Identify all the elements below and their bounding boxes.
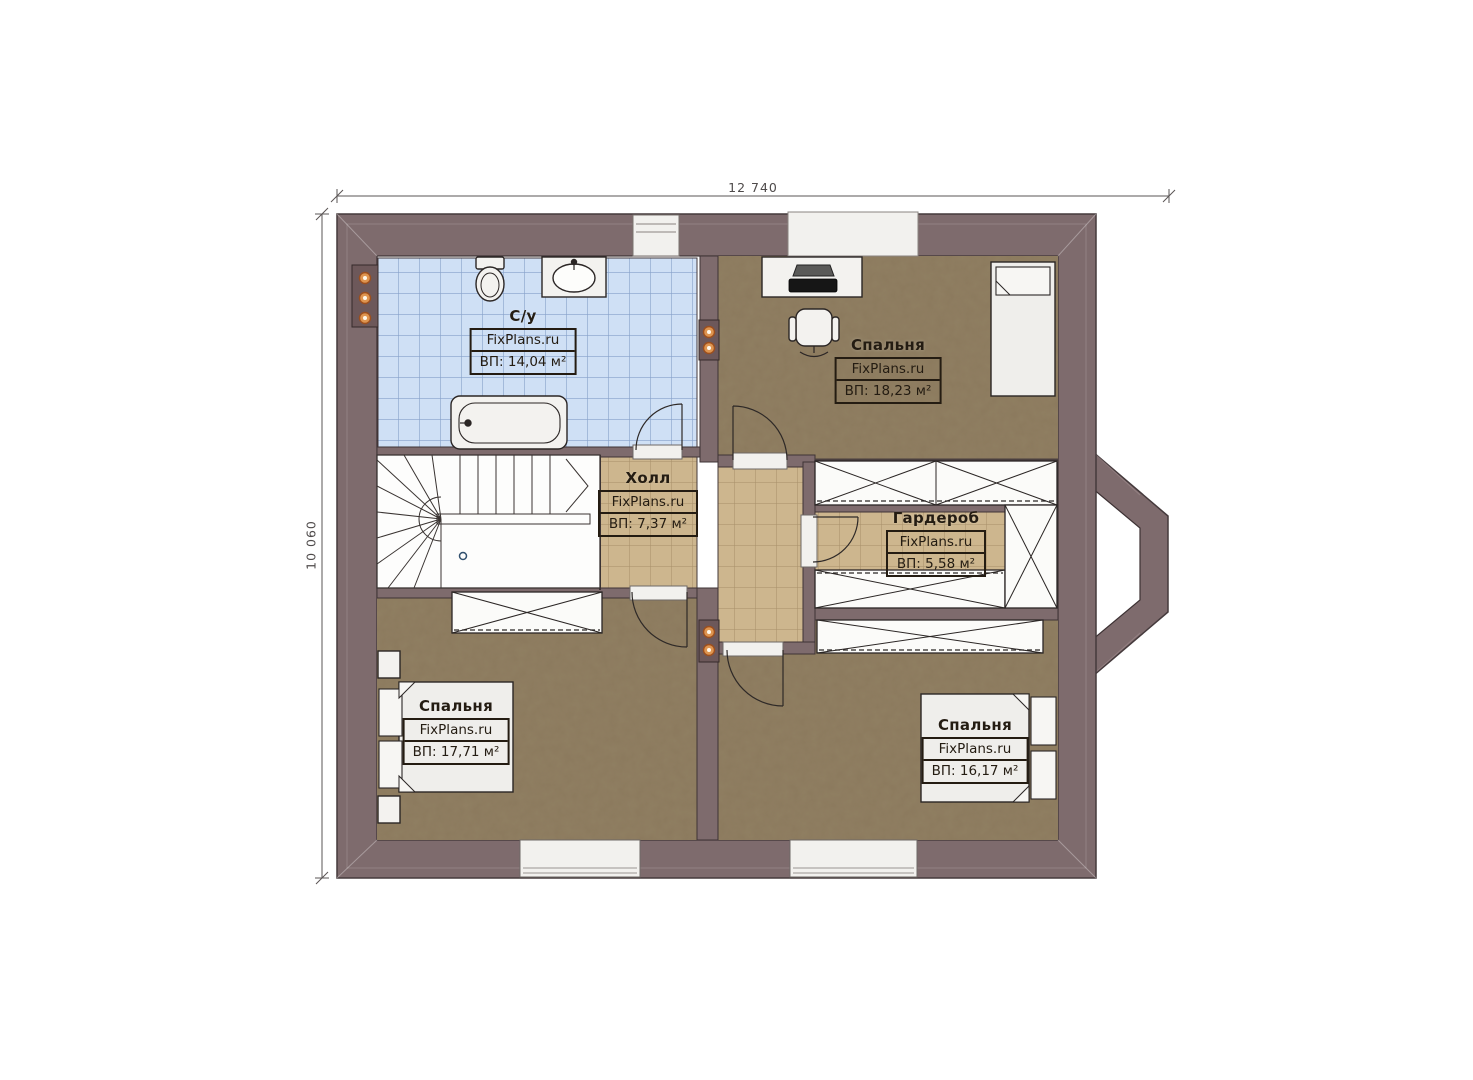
room-title: Холл	[625, 469, 670, 487]
room-info-box: FixPlans.ru ВП: 16,17 м²	[922, 737, 1029, 784]
room-title: Спальня	[851, 336, 925, 354]
light-panel-hall-bottom	[699, 620, 719, 662]
room-title: Спальня	[938, 716, 1012, 734]
room-area: ВП: 5,58 м²	[888, 554, 984, 575]
room-info-box: FixPlans.ru ВП: 18,23 м²	[835, 357, 942, 404]
room-label-bedroom-bottom-left: Спальня FixPlans.ru ВП: 17,71 м²	[403, 697, 510, 765]
storage-unit-top	[815, 461, 1057, 505]
room-area: ВП: 14,04 м²	[472, 352, 575, 373]
sink	[542, 257, 606, 297]
room-label-wardrobe: Гардероб FixPlans.ru ВП: 5,58 м²	[886, 509, 986, 577]
room-area: ВП: 7,37 м²	[600, 514, 696, 535]
room-info-box: FixPlans.ru ВП: 17,71 м²	[403, 718, 510, 765]
room-area: ВП: 17,71 м²	[405, 742, 508, 763]
light-panel-bathroom-left	[352, 265, 378, 327]
storage-unit-tall	[1005, 505, 1057, 608]
floor-plan-svg	[0, 0, 1473, 1080]
room-brand: FixPlans.ru	[888, 532, 984, 554]
floor-plan-canvas: 12 740 10 060 С/у FixPlans.ru ВП: 14,04 …	[0, 0, 1473, 1080]
window-top-small	[633, 215, 679, 256]
floor-corridor	[718, 462, 803, 650]
room-label-bathroom: С/у FixPlans.ru ВП: 14,04 м²	[470, 307, 577, 375]
window-bottom-left	[520, 840, 640, 877]
storage-unit-bedroom-bl	[452, 592, 602, 633]
light-panel-hall-top	[699, 320, 719, 360]
room-label-hall: Холл FixPlans.ru ВП: 7,37 м²	[598, 469, 698, 537]
bed-single	[991, 262, 1055, 396]
desk	[762, 257, 862, 297]
toilet	[476, 257, 504, 301]
room-info-box: FixPlans.ru ВП: 7,37 м²	[598, 490, 698, 537]
room-brand: FixPlans.ru	[837, 359, 940, 381]
window-top-dormer	[788, 212, 918, 256]
room-label-bedroom-bottom-right: Спальня FixPlans.ru ВП: 16,17 м²	[922, 716, 1029, 784]
dimension-height-label: 10 060	[304, 520, 319, 570]
room-label-bedroom-top-right: Спальня FixPlans.ru ВП: 18,23 м²	[835, 336, 942, 404]
room-area: ВП: 18,23 м²	[837, 381, 940, 402]
room-area: ВП: 16,17 м²	[924, 761, 1027, 782]
staircase	[377, 455, 600, 588]
room-brand: FixPlans.ru	[472, 330, 575, 352]
nightstand	[378, 796, 400, 823]
room-brand: FixPlans.ru	[924, 739, 1027, 761]
room-title: С/у	[509, 307, 536, 325]
bathtub	[451, 396, 567, 449]
nightstand	[378, 651, 400, 678]
room-info-box: FixPlans.ru ВП: 5,58 м²	[886, 530, 986, 577]
room-title: Спальня	[419, 697, 493, 715]
dimension-width-label: 12 740	[728, 180, 778, 195]
room-title: Гардероб	[893, 509, 980, 527]
storage-unit-bedroom-br	[817, 620, 1043, 653]
window-bottom-right	[790, 840, 917, 877]
room-info-box: FixPlans.ru ВП: 14,04 м²	[470, 328, 577, 375]
room-brand: FixPlans.ru	[600, 492, 696, 514]
room-brand: FixPlans.ru	[405, 720, 508, 742]
